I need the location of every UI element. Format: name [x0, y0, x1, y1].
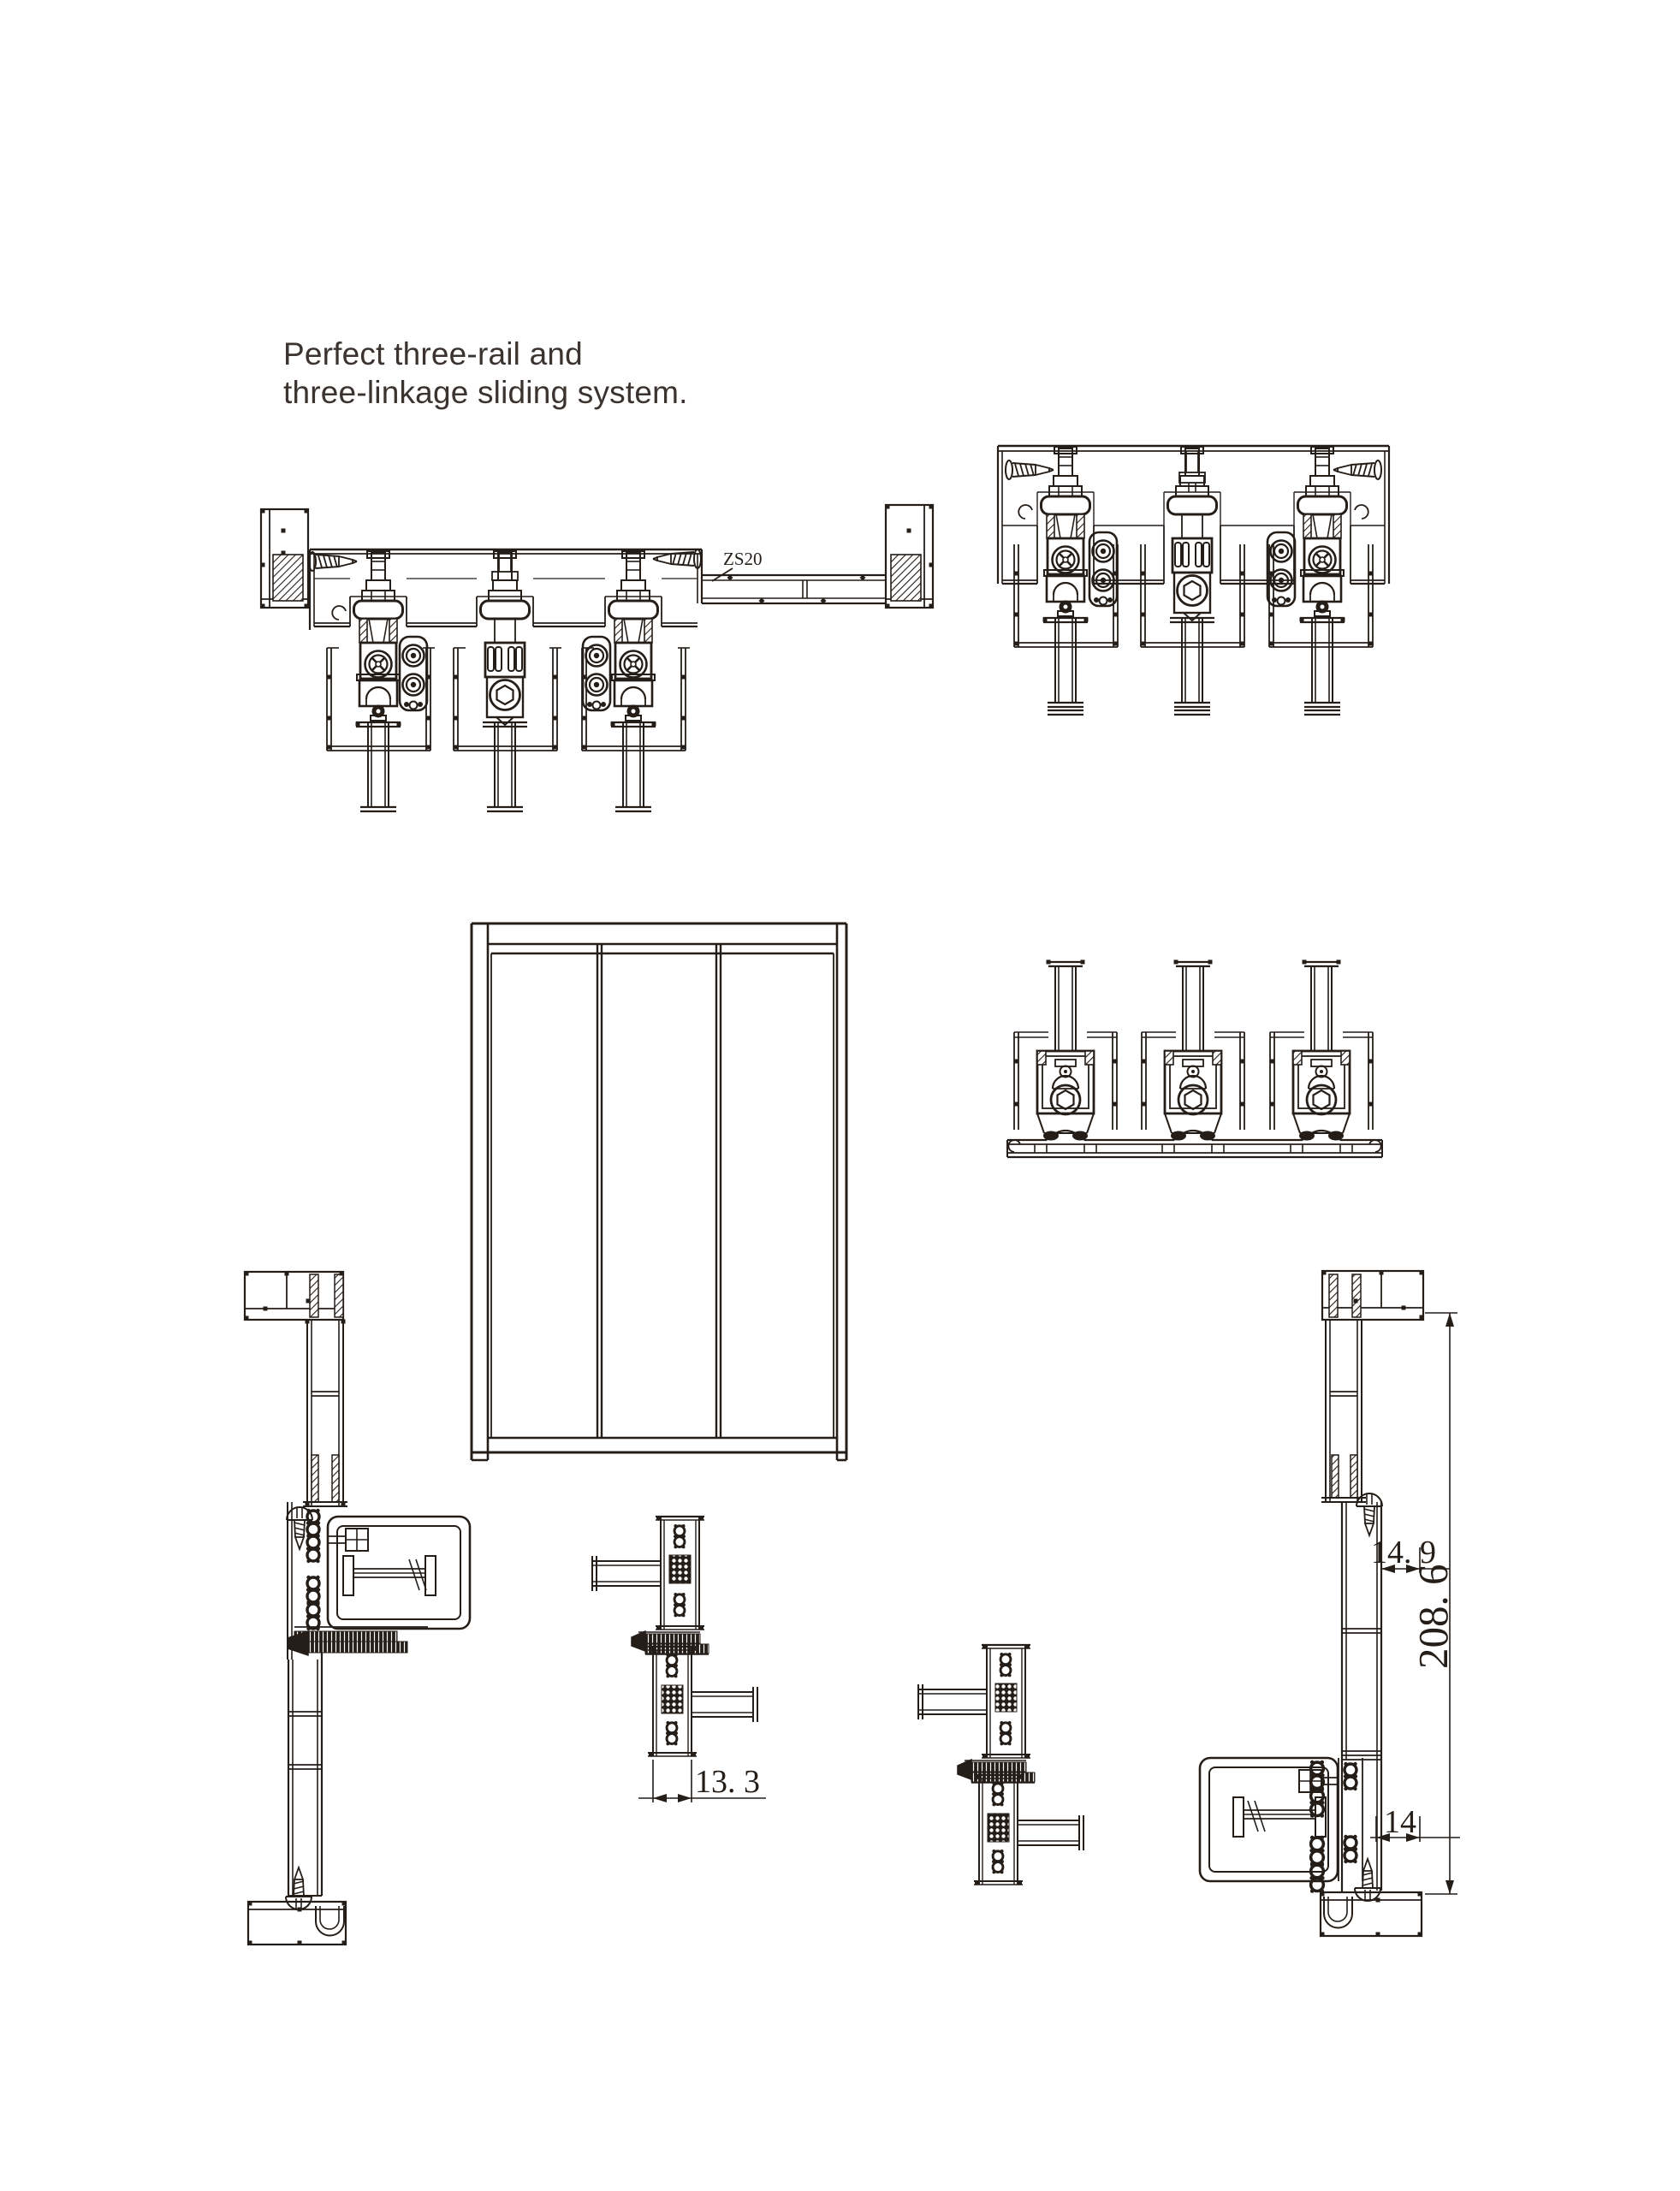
svg-text:ZS20: ZS20	[723, 549, 763, 569]
svg-text:13. 3: 13. 3	[695, 1764, 760, 1800]
